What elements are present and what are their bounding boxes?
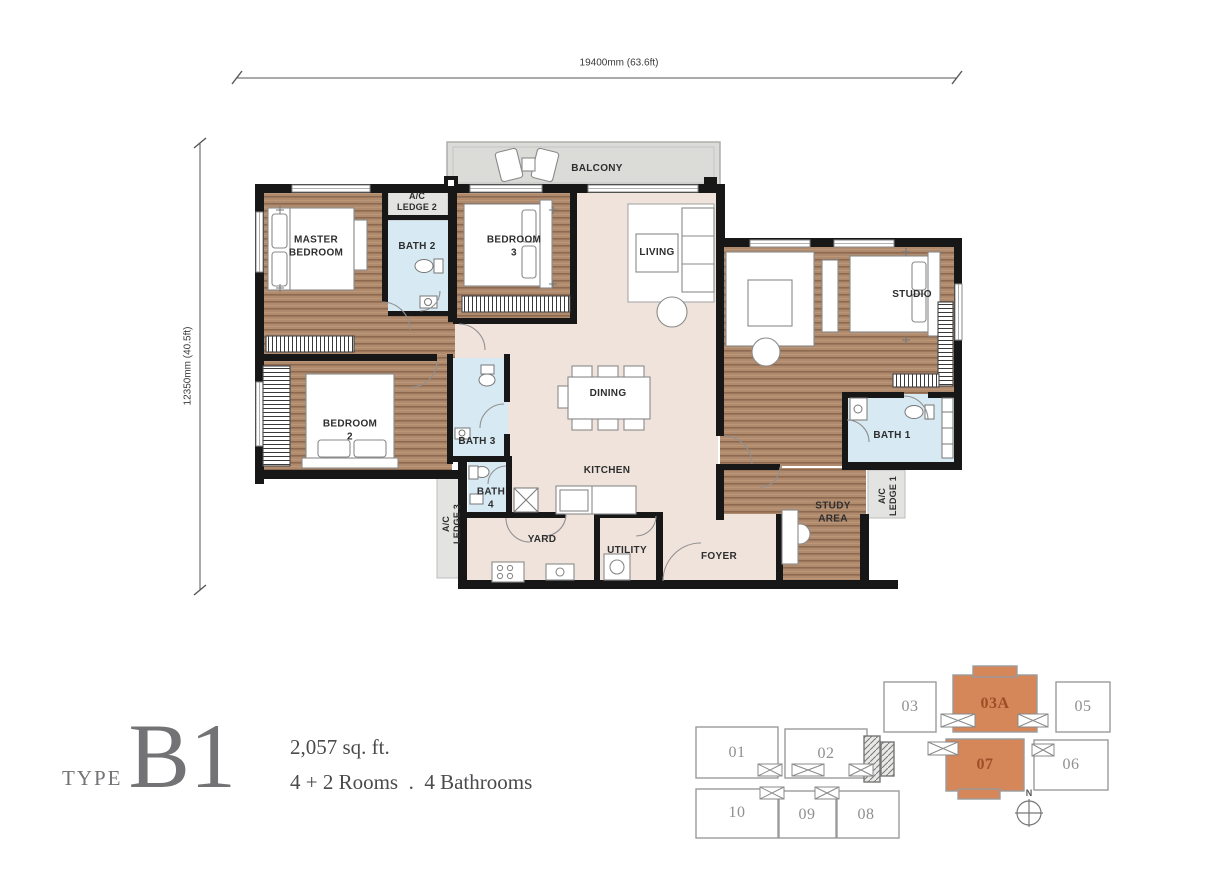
- type-title: TYPE B1: [62, 714, 236, 799]
- bedroom2-wardrobe: [263, 366, 290, 466]
- floors: [260, 142, 957, 586]
- yard-stove: [492, 562, 524, 582]
- room-label-bath-3: BATH 3: [458, 436, 495, 449]
- studio-wardrobe: [938, 302, 953, 386]
- yard-sink: [546, 564, 574, 580]
- room-label-balcony: BALCONY: [571, 163, 623, 176]
- keyplan-unit-07: 07: [977, 756, 994, 774]
- lift-core: [881, 742, 894, 776]
- balcony-table: [522, 158, 535, 171]
- compass-icon: [1015, 799, 1043, 827]
- room-label-bath-2: BATH 2: [398, 241, 435, 254]
- room-label-study-area: STUDY AREA: [815, 501, 850, 526]
- dimension-height-label: 12350mm (40.5ft): [183, 327, 194, 406]
- floor-family-corridor: [720, 350, 782, 526]
- living-sofa: [682, 208, 714, 292]
- floor-yard: [464, 514, 598, 584]
- room-label-dining: DINING: [590, 388, 627, 401]
- area-text: 2,057 sq. ft.: [290, 735, 390, 760]
- room-label-bath-1: BATH 1: [873, 430, 910, 443]
- room-label-foyer: FOYER: [701, 551, 737, 564]
- room-label-bedroom-3: BEDROOM 3: [487, 235, 541, 260]
- room-label-ac-ledge-1: A/C LEDGE 1: [877, 476, 900, 516]
- dimension-width-label: 19400mm (63.6ft): [580, 58, 659, 69]
- room-label-ac-ledge-3: A/C LEDGE 3: [441, 504, 464, 544]
- beanbag: [657, 297, 687, 327]
- config-text: 4 + 2 Rooms . 4 Bathrooms: [290, 770, 532, 795]
- compass-north-label: N: [1026, 788, 1033, 798]
- room-label-bedroom-2: BEDROOM 2: [323, 419, 377, 444]
- floorplan-page: BALCONY MASTER BEDROOM A/C LEDGE 2 BATH …: [0, 0, 1218, 882]
- room-label-utility: UTILITY: [607, 545, 647, 558]
- type-code: B1: [129, 714, 236, 799]
- room-label-living: LIVING: [639, 247, 674, 260]
- utility-washer: [604, 554, 630, 580]
- room-label-master-bedroom: MASTER BEDROOM: [289, 235, 343, 260]
- study-desk: [782, 510, 798, 564]
- room-label-yard: YARD: [528, 534, 557, 547]
- keyplan-unit-02: 02: [818, 745, 835, 763]
- master-wardrobe: [266, 336, 354, 352]
- beanbag: [752, 338, 780, 366]
- keyplan-unit-06: 06: [1063, 756, 1080, 774]
- keyplan-unit-01: 01: [729, 744, 746, 762]
- room-label-ac-ledge-2: A/C LEDGE 2: [397, 191, 437, 214]
- bedroom3-wardrobe: [462, 296, 570, 312]
- keyplan-unit-08: 08: [858, 806, 875, 824]
- keyplan-unit-05: 05: [1075, 698, 1092, 716]
- room-label-studio: STUDIO: [892, 289, 932, 302]
- keyplan-unit-03: 03: [902, 698, 919, 716]
- room-label-bath-4: BATH 4: [477, 487, 505, 512]
- room-label-kitchen: KITCHEN: [584, 465, 631, 478]
- keyplan-unit-09: 09: [799, 806, 816, 824]
- keyplan-unit-03A: 03A: [980, 695, 1009, 713]
- keyplan-unit-10: 10: [729, 804, 746, 822]
- type-word: TYPE: [62, 766, 123, 791]
